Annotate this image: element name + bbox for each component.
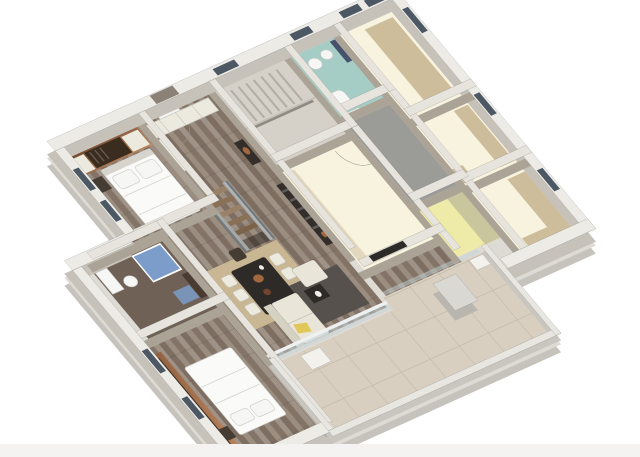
plan-layer (0, 0, 640, 457)
screenshot-canvas (0, 0, 640, 457)
bottom-strip (0, 444, 640, 457)
floor-plan-render (0, 0, 640, 457)
